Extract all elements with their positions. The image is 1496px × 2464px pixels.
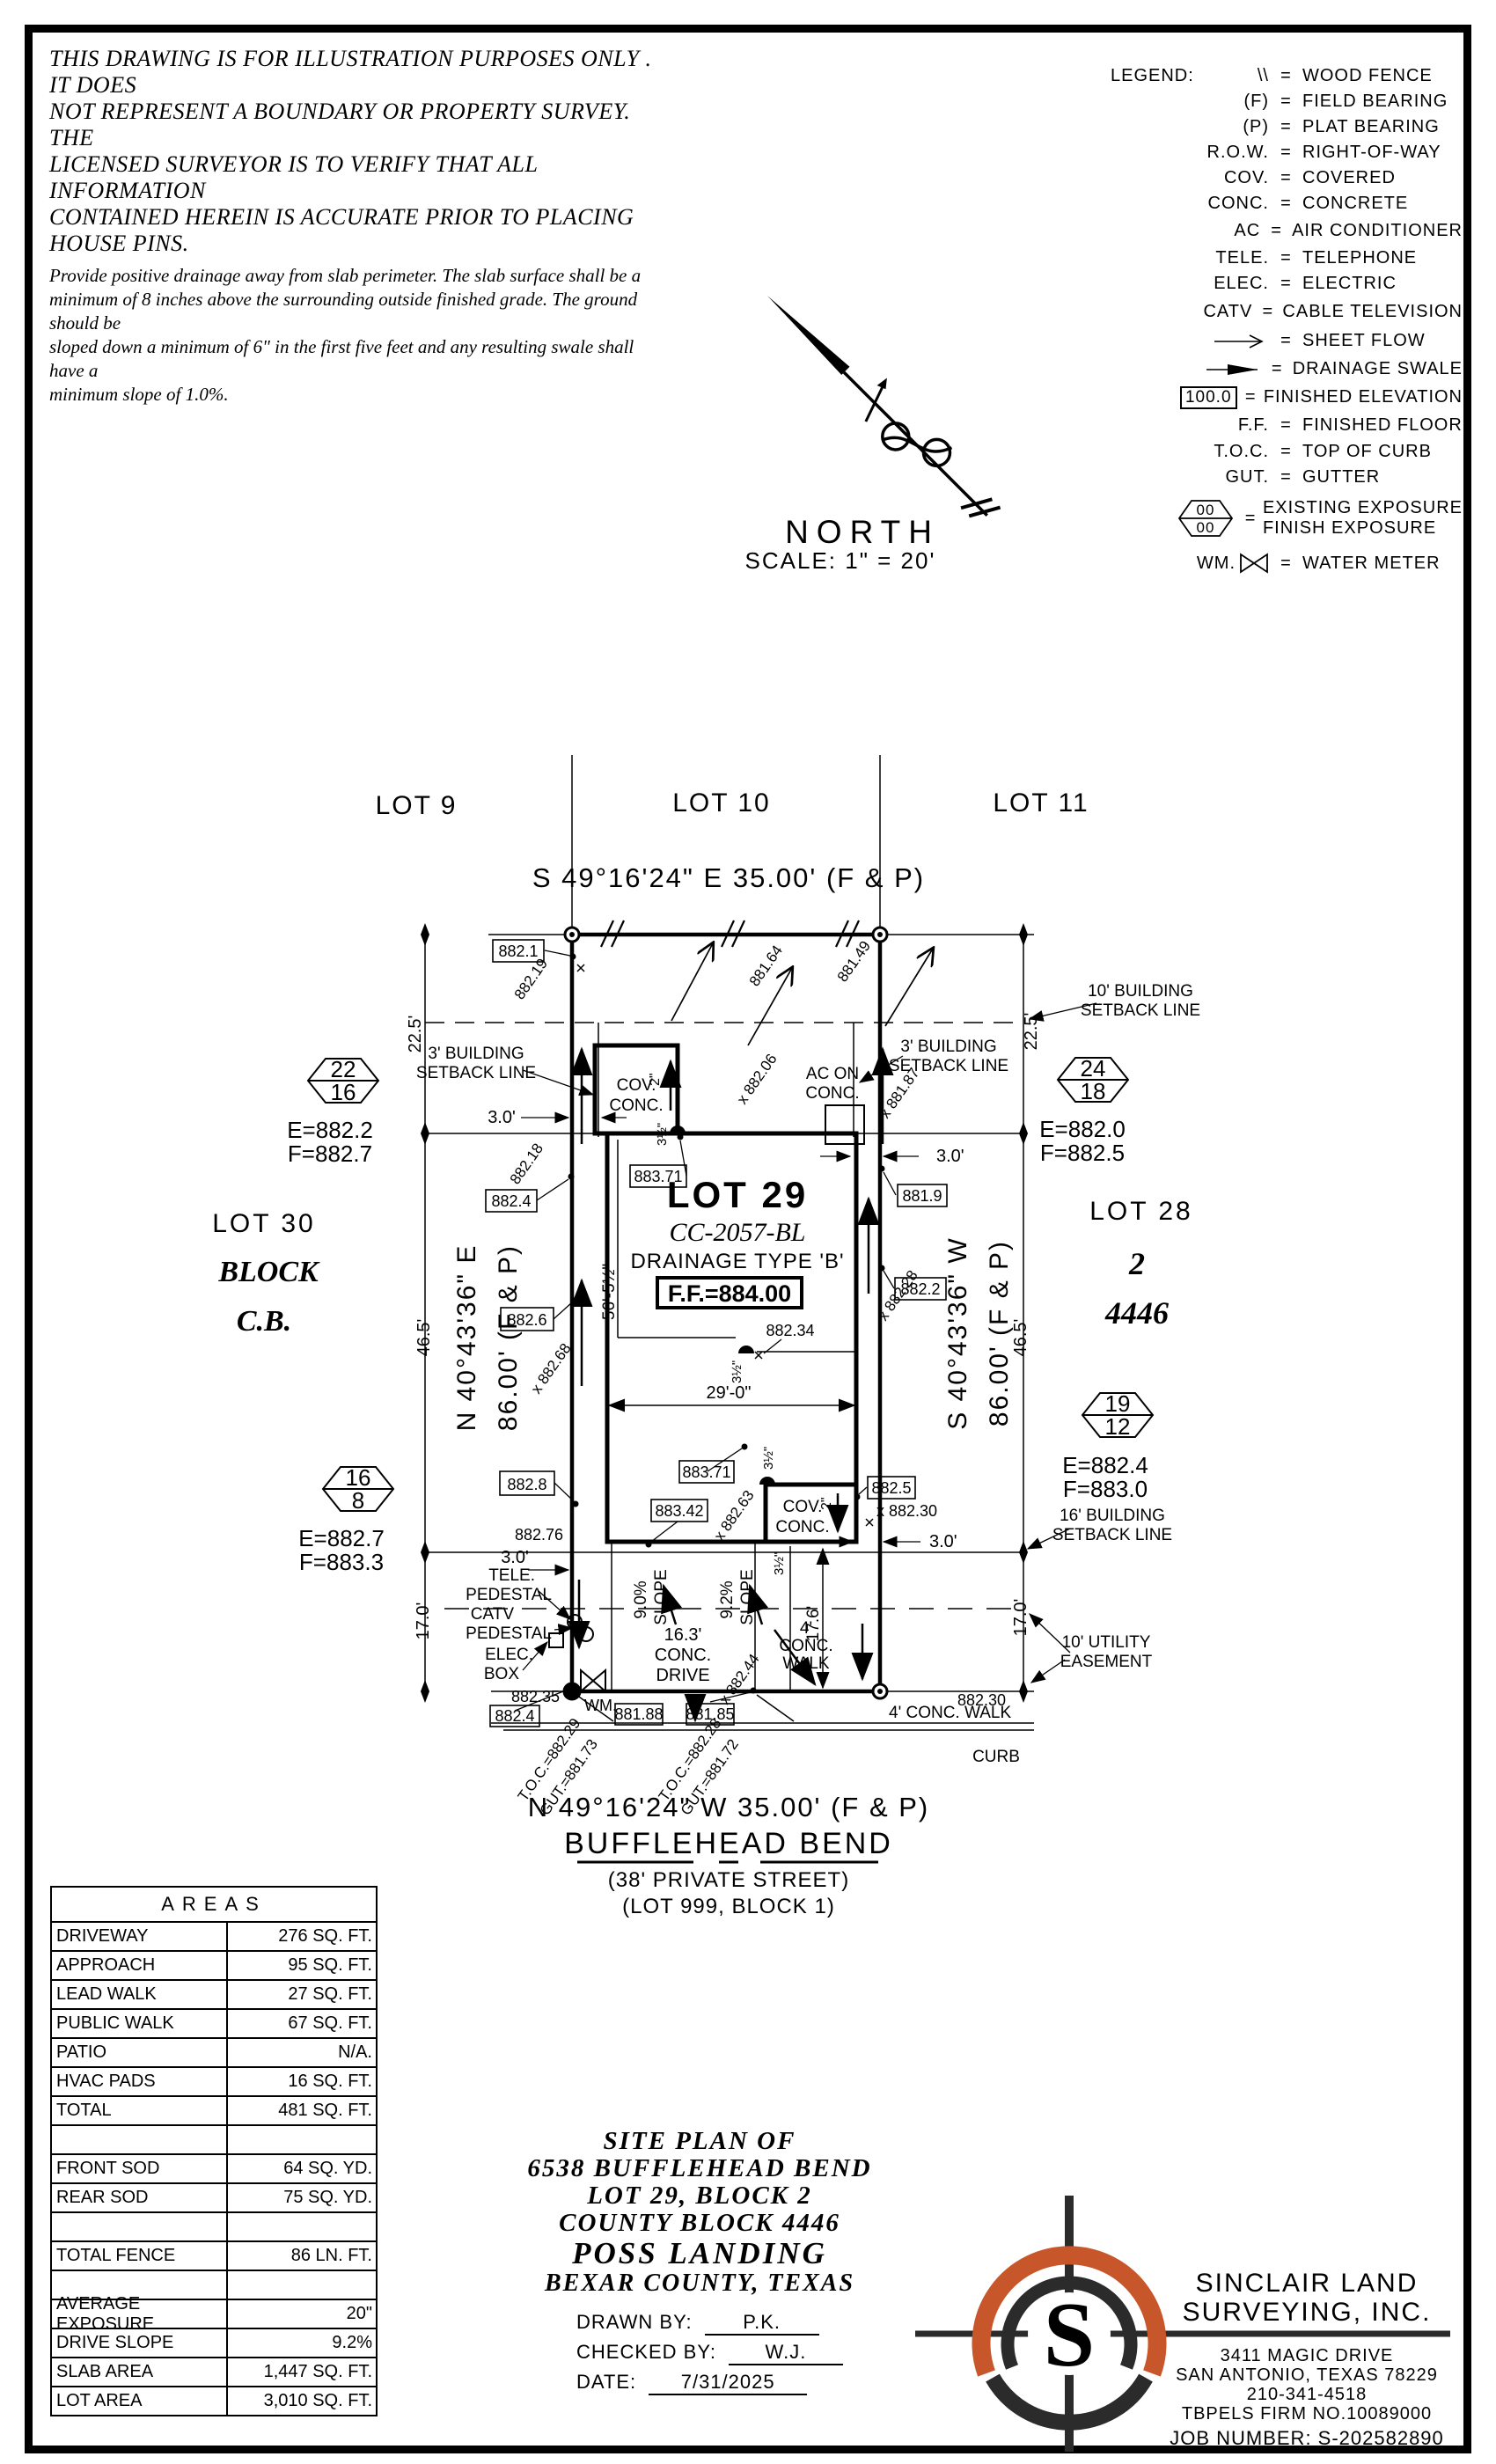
walk-label: WALK xyxy=(782,1654,829,1673)
lot28-label: LOT 28 xyxy=(1089,1197,1193,1226)
existing-grade: E=882.7 xyxy=(298,1525,385,1551)
row-label: PATIO xyxy=(52,2039,228,2066)
lot-block: LOT 29, BLOCK 2 xyxy=(480,2182,920,2210)
row-label: LEAD WALK xyxy=(52,1981,228,2008)
row-value: 75 SQ. YD. xyxy=(228,2184,376,2211)
table-row: DRIVE SLOPE9.2% xyxy=(52,2329,376,2358)
table-row-blank xyxy=(52,2213,376,2242)
street-note: (38' PRIVATE STREET) xyxy=(608,1868,849,1892)
spot-elev: 882.35 xyxy=(511,1688,560,1705)
sheet-flow-arrows xyxy=(671,943,933,1045)
exposure-hex-ne: 24 18 E=882.0 F=882.5 xyxy=(1039,1055,1128,1166)
spot-elev: 881.64 xyxy=(746,942,786,989)
spot-elev: x 882.63 xyxy=(711,1487,758,1544)
table-row: APPROACH95 SQ. FT. xyxy=(52,1952,376,1981)
row-label: DRIVEWAY xyxy=(52,1923,228,1950)
dim-label: 3.0' xyxy=(929,1532,957,1551)
row-label: DRIVE SLOPE xyxy=(52,2329,228,2357)
setback-label: SETBACK LINE xyxy=(1081,1001,1200,1020)
row-label: TOTAL FENCE xyxy=(52,2242,228,2270)
drawn-by-label: DRAWN BY: xyxy=(576,2311,693,2334)
dim-label: 17.0' xyxy=(414,1602,433,1640)
water-meter-label: WM. xyxy=(584,1697,617,1714)
spot-elev: x 882.06 xyxy=(734,1051,781,1107)
county-block: COUNTY BLOCK 4446 xyxy=(480,2210,920,2237)
row-label: HVAC PADS xyxy=(52,2068,228,2095)
dim-label: 3.0' xyxy=(936,1147,964,1166)
wall-dim: 3½" xyxy=(772,1552,787,1575)
title-line: SITE PLAN OF xyxy=(480,2128,920,2155)
row-value: 64 SQ. YD. xyxy=(228,2155,376,2182)
street-name: BUFFLEHEAD BEND xyxy=(564,1827,893,1860)
rear-bearing: S 49°16'24" E 35.00' (F & P) xyxy=(532,862,925,893)
row-label: LOT AREA xyxy=(52,2387,228,2415)
drive-label: DRIVE xyxy=(656,1666,709,1685)
signature-block: DRAWN BY: P.K. CHECKED BY: W.J. DATE: 7/… xyxy=(576,2311,928,2401)
slope-label: 9.0% xyxy=(632,1580,650,1618)
subdivision-name: POSS LANDING xyxy=(480,2237,920,2270)
north-arrow-icon xyxy=(752,277,1008,533)
table-row: REAR SOD75 SQ. YD. xyxy=(52,2184,376,2213)
dim-label: 22.5' xyxy=(1022,1013,1041,1051)
table-row: PATION/A. xyxy=(52,2039,376,2068)
lot9-label: LOT 9 xyxy=(376,791,458,820)
row-value: 27 SQ. FT. xyxy=(228,1981,376,2008)
finished-floor-elev: F.F.=884.00 xyxy=(668,1280,791,1307)
tele-pedestal-label: TELE. xyxy=(488,1566,535,1585)
scale-label: SCALE: 1" = 20' xyxy=(678,547,1003,575)
exposure-hex-nw: 22 16 E=882.2 F=882.7 xyxy=(287,1056,378,1167)
pedestal-label: PEDESTAL xyxy=(466,1624,552,1643)
table-row: SLAB AREA1,447 SQ. FT. xyxy=(52,2358,376,2387)
company-address: 3411 MAGIC DRIVE SAN ANTONIO, TEXAS 7822… xyxy=(1153,2346,1461,2424)
north-label: NORTH xyxy=(739,514,986,551)
finish-grade: F=882.5 xyxy=(1040,1140,1125,1166)
date-label: DATE: xyxy=(576,2371,636,2394)
site-plan-sheet: { "disclaimer": { "p1": [ "THIS DRAWING … xyxy=(0,0,1496,2464)
exposure-bottom: 12 xyxy=(1105,1413,1131,1440)
dim-label: 3.0' xyxy=(488,1108,516,1127)
county-state: BEXAR COUNTY, TEXAS xyxy=(480,2270,920,2298)
row-value: 3,010 SQ. FT. xyxy=(228,2387,376,2415)
row-value: N/A. xyxy=(228,2039,376,2066)
front-bearing: N 49°16'24" W 35.00' (F & P) xyxy=(528,1792,930,1822)
site-address: 6538 BUFFLEHEAD BEND xyxy=(480,2155,920,2182)
dim-label: 22.5' xyxy=(406,1016,425,1053)
street-note: (LOT 999, BLOCK 1) xyxy=(622,1895,835,1918)
existing-grade: E=882.0 xyxy=(1039,1116,1126,1142)
wall-dim: 3½" xyxy=(761,1447,776,1470)
spot-elev-boxed: 882.4 xyxy=(495,1707,534,1725)
easement-label: 10' UTILITY xyxy=(1062,1633,1151,1652)
exposure-bottom: 18 xyxy=(1081,1078,1106,1104)
wall-dim: 3½" xyxy=(655,1123,670,1146)
right-bearing: S 40°43'36" W xyxy=(943,1236,972,1429)
covered-conc-label: CONC. xyxy=(609,1096,663,1115)
table-row: AVERAGE EXPOSURE20" xyxy=(52,2300,376,2329)
row-value xyxy=(228,2271,376,2299)
row-label: AVERAGE EXPOSURE xyxy=(52,2300,228,2328)
slope-label: SLOPE xyxy=(652,1569,671,1624)
row-label xyxy=(52,2126,228,2153)
existing-grade: E=882.4 xyxy=(1062,1452,1148,1478)
address-line: 3411 MAGIC DRIVE xyxy=(1153,2346,1461,2365)
catv-pedestal-label: CATV xyxy=(471,1605,515,1624)
row-label: APPROACH xyxy=(52,1952,228,1979)
spot-elev: x 882.68 xyxy=(528,1340,575,1397)
covered-conc-label: COV. xyxy=(617,1076,656,1095)
setback-label: 3' BUILDING xyxy=(428,1045,524,1063)
easement-label: EASEMENT xyxy=(1060,1653,1153,1671)
row-value: 9.2% xyxy=(228,2329,376,2357)
setback-label: 16' BUILDING xyxy=(1060,1507,1165,1525)
spot-elev-boxed: 882.1 xyxy=(498,942,538,960)
drive-label: 16.3' xyxy=(664,1625,702,1645)
setback-label: SETBACK LINE xyxy=(1052,1526,1172,1544)
walk-label: CONC. xyxy=(779,1637,832,1655)
table-row: HVAC PADS16 SQ. FT. xyxy=(52,2068,376,2097)
spot-elev-boxed: 882.4 xyxy=(491,1192,531,1210)
water-meter-icon xyxy=(581,1670,605,1691)
row-value xyxy=(228,2213,376,2240)
row-value: 67 SQ. FT. xyxy=(228,2010,376,2037)
dim-label: 46.5' xyxy=(1011,1319,1030,1357)
address-line: SAN ANTONIO, TEXAS 78229 xyxy=(1153,2365,1461,2385)
spot-elev: 882.19 xyxy=(511,956,551,1002)
company-name-line: SURVEYING, INC. xyxy=(1162,2298,1452,2327)
table-row: PUBLIC WALK67 SQ. FT. xyxy=(52,2010,376,2039)
cc-number: CC-2057-BL xyxy=(669,1218,805,1247)
lot10-label: LOT 10 xyxy=(672,788,771,818)
row-value: 481 SQ. FT. xyxy=(228,2097,376,2124)
walk-label: 4' xyxy=(800,1619,812,1638)
block-number: 2 xyxy=(1128,1246,1145,1281)
row-value: 86 LN. FT. xyxy=(228,2242,376,2270)
lot11-label: LOT 11 xyxy=(993,788,1089,818)
row-label: REAR SOD xyxy=(52,2184,228,2211)
areas-table: AREAS DRIVEWAY276 SQ. FT. APPROACH95 SQ.… xyxy=(50,1886,378,2416)
covered-conc-label: CONC. xyxy=(775,1518,829,1536)
row-value: 16 SQ. FT. xyxy=(228,2068,376,2095)
date-value: 7/31/2025 xyxy=(649,2371,807,2395)
row-label: FRONT SOD xyxy=(52,2155,228,2182)
row-label xyxy=(52,2213,228,2240)
pedestal-label: PEDESTAL xyxy=(466,1586,552,1604)
drive-label: CONC. xyxy=(655,1646,711,1665)
table-row: FRONT SOD64 SQ. YD. xyxy=(52,2155,376,2184)
spot-elev: 882.34 xyxy=(766,1322,814,1339)
spot-elev-boxed: 883.71 xyxy=(682,1463,730,1481)
exposure-bottom: 16 xyxy=(331,1079,356,1105)
row-label: PUBLIC WALK xyxy=(52,2010,228,2037)
row-label: TOTAL xyxy=(52,2097,228,2124)
dim-label: 3.0' xyxy=(501,1548,529,1567)
company-name-line: SINCLAIR LAND xyxy=(1162,2269,1452,2298)
spot-elev-boxed: 883.42 xyxy=(655,1502,703,1520)
areas-table-title: AREAS xyxy=(52,1888,376,1923)
checked-by-label: CHECKED BY: xyxy=(576,2341,716,2364)
ac-label: AC ON xyxy=(806,1065,859,1083)
setback-label: SETBACK LINE xyxy=(416,1064,536,1082)
job-number: JOB NUMBER: S-202582890 xyxy=(1153,2427,1461,2450)
row-value xyxy=(228,2126,376,2153)
firm-number: TBPELS FIRM NO.10089000 xyxy=(1153,2404,1461,2424)
title-block: SITE PLAN OF 6538 BUFFLEHEAD BEND LOT 29… xyxy=(480,2128,920,2298)
elec-box-label: BOX xyxy=(484,1665,519,1683)
elec-box-label: ELEC. xyxy=(485,1646,533,1664)
cb-label: C.B. xyxy=(237,1305,291,1338)
row-value: 95 SQ. FT. xyxy=(228,1952,376,1979)
spot-elev-boxed: 882.5 xyxy=(871,1479,911,1497)
finish-grade: F=883.3 xyxy=(299,1549,384,1575)
spot-elev: 881.49 xyxy=(834,938,874,985)
logo-letter: S xyxy=(1044,2283,1095,2386)
exposure-bottom: 8 xyxy=(352,1487,364,1514)
right-bearing-length: 86.00' (F & P) xyxy=(985,1240,1014,1426)
phone-number: 210-341-4518 xyxy=(1153,2385,1461,2404)
company-name: SINCLAIR LAND SURVEYING, INC. xyxy=(1162,2269,1452,2327)
row-value: 1,447 SQ. FT. xyxy=(228,2358,376,2386)
ac-label: CONC. xyxy=(805,1084,859,1103)
row-value: 20" xyxy=(228,2300,376,2328)
drainage-type: DRAINAGE TYPE 'B' xyxy=(630,1250,844,1273)
left-bearing: N 40°43'36" E xyxy=(452,1244,481,1432)
left-bearing-length: 86.00' (F & P) xyxy=(494,1244,523,1431)
dim-label: 46.5' xyxy=(414,1319,434,1357)
spot-elev-boxed: 882.8 xyxy=(507,1476,546,1493)
lot29-label: LOT 29 xyxy=(667,1174,808,1215)
curb-label: CURB xyxy=(972,1748,1020,1766)
county-block-number: 4446 xyxy=(1104,1295,1169,1331)
setback-label: 3' BUILDING xyxy=(900,1038,996,1056)
dim-label: 29'-0" xyxy=(707,1383,752,1403)
plan-text: LOT 9 LOT 10 LOT 11 S 49°16'24" E 35.00'… xyxy=(212,788,1200,1918)
lot30-label: LOT 30 xyxy=(212,1209,316,1238)
spot-elev-boxed: 881.9 xyxy=(902,1187,942,1205)
exposure-hex-se: 19 12 E=882.4 F=883.0 xyxy=(1062,1390,1153,1502)
table-row: TOTAL481 SQ. FT. xyxy=(52,2097,376,2126)
spot-elev: x 882.30 xyxy=(876,1502,937,1520)
slope-label: SLOPE xyxy=(738,1569,757,1624)
finish-grade: F=882.7 xyxy=(288,1140,372,1167)
table-row: LOT AREA3,010 SQ. FT. xyxy=(52,2387,376,2415)
spot-elev: 882.76 xyxy=(515,1526,563,1544)
setback-label: 10' BUILDING xyxy=(1088,982,1193,1001)
table-row: TOTAL FENCE86 LN. FT. xyxy=(52,2242,376,2271)
setback-label: SETBACK LINE xyxy=(889,1057,1008,1075)
row-label: SLAB AREA xyxy=(52,2358,228,2386)
dim-label: 56'-5½" xyxy=(600,1264,619,1320)
table-row: DRIVEWAY276 SQ. FT. xyxy=(52,1923,376,1952)
table-row: LEAD WALK27 SQ. FT. xyxy=(52,1981,376,2010)
block-label: BLOCK xyxy=(217,1256,320,1288)
dim-label: 17.0' xyxy=(1011,1599,1030,1637)
finish-grade: F=883.0 xyxy=(1063,1476,1148,1502)
spot-elev: 882.18 xyxy=(507,1140,546,1187)
exposure-hex-sw: 16 8 E=882.7 F=883.3 xyxy=(298,1464,393,1575)
catv-pedestal-icon xyxy=(579,1627,593,1641)
public-walk-label: 4' CONC. WALK xyxy=(889,1704,1011,1722)
existing-grade: E=882.2 xyxy=(287,1117,373,1143)
table-row-blank xyxy=(52,2126,376,2155)
wall-dim: 3½" xyxy=(730,1360,744,1383)
spot-elev-boxed: 881.88 xyxy=(614,1705,663,1723)
drawn-by-value: P.K. xyxy=(705,2311,819,2336)
slope-label: 9.2% xyxy=(718,1580,737,1618)
checked-by-value: W.J. xyxy=(729,2341,843,2365)
covered-conc-label: COV. xyxy=(783,1498,823,1516)
row-value: 276 SQ. FT. xyxy=(228,1923,376,1950)
